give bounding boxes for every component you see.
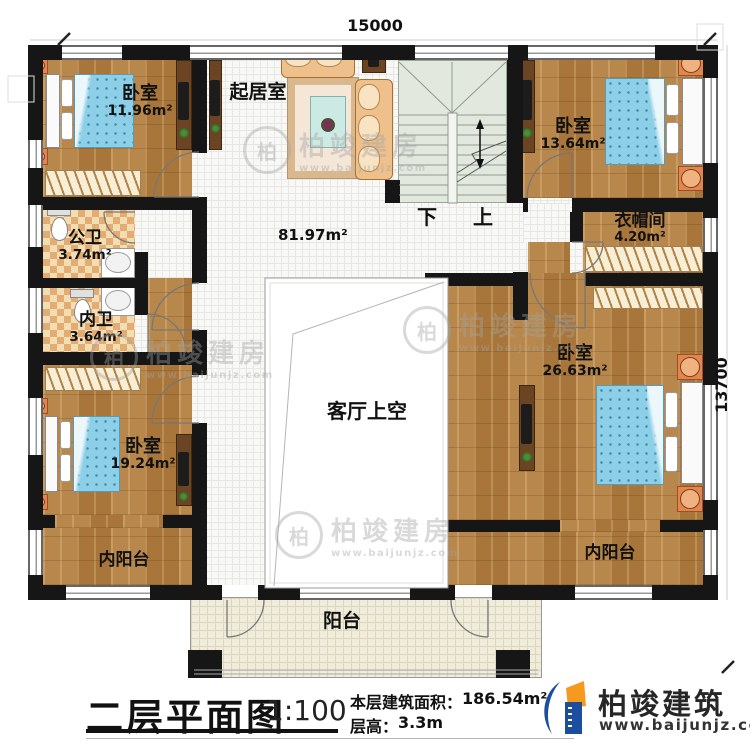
window xyxy=(66,585,150,600)
wardrobe xyxy=(593,287,703,309)
room-label-balcony-inner-left: 内阳台 xyxy=(92,551,156,570)
toilet-tank xyxy=(70,289,94,298)
window xyxy=(190,45,342,60)
wall-segment xyxy=(28,45,43,140)
pillow xyxy=(60,454,71,482)
drawing-scale: 1:100 xyxy=(266,694,347,727)
window xyxy=(62,45,122,60)
wall-segment xyxy=(192,423,207,515)
room-label-balcony-inner-right: 内阳台 xyxy=(578,544,642,563)
plant-icon xyxy=(522,128,532,138)
company-logo-icon xyxy=(538,676,594,740)
wall-segment xyxy=(513,272,528,320)
living-area-value: 81.97m² xyxy=(278,227,346,244)
plant-icon xyxy=(179,128,189,138)
wall-segment xyxy=(150,585,222,600)
wall-segment xyxy=(28,585,66,600)
window xyxy=(575,585,652,600)
wall-segment xyxy=(585,273,718,286)
hall-floor-pocket xyxy=(523,203,570,243)
column xyxy=(188,650,222,678)
floor-area-note: 本层建筑面积： 186.54m² xyxy=(350,689,547,713)
wall-segment xyxy=(28,197,207,210)
pillow xyxy=(665,392,678,428)
room-balcony-inner-right-floor xyxy=(440,532,703,585)
bed-headboard xyxy=(681,382,703,484)
wall-segment xyxy=(28,278,148,288)
wall-segment xyxy=(572,198,718,212)
stair-up-label: 上 xyxy=(468,206,498,228)
title-underline-thin xyxy=(86,738,574,739)
wardrobe xyxy=(45,170,141,196)
room-label-closet: 衣帽间 4.20m² xyxy=(600,212,680,246)
bed-headboard xyxy=(46,74,60,148)
room-label-bedroom-tr: 卧室 13.64m² xyxy=(533,117,613,153)
window xyxy=(28,530,43,575)
nightstand xyxy=(678,166,704,191)
coffee-table xyxy=(310,96,346,148)
nightstand xyxy=(677,354,703,380)
wall-segment xyxy=(135,252,148,315)
wall-segment xyxy=(385,180,400,203)
stair-down-label: 下 xyxy=(412,206,442,228)
title-underline xyxy=(86,729,338,733)
wall-segment xyxy=(652,585,718,600)
column xyxy=(496,650,530,678)
window xyxy=(300,585,410,600)
wall-segment xyxy=(192,528,207,585)
pillow xyxy=(61,112,73,140)
nightstand xyxy=(677,486,703,512)
wall-segment xyxy=(523,198,528,212)
wall-segment xyxy=(410,585,455,600)
pillow xyxy=(666,122,679,154)
window xyxy=(703,530,718,575)
wall-segment xyxy=(192,210,207,283)
bed-headboard xyxy=(45,416,58,492)
plant-icon xyxy=(179,492,188,501)
wall-segment xyxy=(192,330,207,375)
room-label-bedroom-br: 卧室 26.63m² xyxy=(535,344,615,380)
room-label-balcony: 阳台 xyxy=(314,611,370,632)
floor-height-note: 层高： 3.3m xyxy=(350,713,443,737)
wall-segment xyxy=(258,585,300,600)
wall-segment xyxy=(507,45,523,203)
bed-mattress xyxy=(596,385,664,485)
pillow xyxy=(665,436,678,472)
wardrobe xyxy=(585,246,703,272)
bed-headboard xyxy=(682,78,703,165)
pillow xyxy=(60,421,71,449)
dimension-top: 15000 xyxy=(330,16,420,35)
wall-segment xyxy=(122,45,190,60)
window xyxy=(703,78,718,163)
sofa-cushion xyxy=(358,115,380,141)
sink-icon xyxy=(105,290,131,311)
window xyxy=(28,398,43,455)
sofa-cushion xyxy=(358,146,380,172)
window xyxy=(528,45,655,60)
window xyxy=(28,205,43,247)
wall-segment xyxy=(570,212,583,242)
wall-segment xyxy=(28,352,192,365)
floor-plan: 15000 13700 卧室 11.96m² 起居室 81.97m² 卧室 13… xyxy=(0,0,750,745)
flower-icon xyxy=(321,118,335,132)
bed-mattress xyxy=(605,78,665,165)
room-label-void: 客厅上空 xyxy=(322,400,412,422)
plant-icon xyxy=(211,124,220,133)
window xyxy=(28,288,43,333)
sofa-cushion xyxy=(358,84,380,110)
wall-segment xyxy=(425,273,440,520)
window xyxy=(415,45,508,60)
wall-segment xyxy=(492,585,575,600)
balcony-inner-left-passage xyxy=(55,515,163,528)
tv-icon xyxy=(521,404,532,444)
room-label-bath-private: 内卫 3.64m² xyxy=(56,311,136,345)
wall-segment xyxy=(342,45,415,60)
room-label-bedroom-tl: 卧室 11.96m² xyxy=(100,84,180,120)
dimension-right: 13700 xyxy=(712,345,731,425)
staircase xyxy=(398,60,507,203)
wall-segment xyxy=(28,333,43,398)
wall-segment xyxy=(703,45,718,78)
pillow xyxy=(61,79,73,107)
company-logo-url: www.baijunjz.com xyxy=(599,716,750,734)
window xyxy=(28,140,43,168)
window xyxy=(703,218,718,252)
room-balcony-floor xyxy=(190,597,542,678)
room-label-living: 起居室 xyxy=(214,82,302,103)
wall-segment xyxy=(28,515,55,528)
room-label-bath-public: 公卫 3.74m² xyxy=(45,229,125,263)
pillow xyxy=(666,84,679,116)
wall-segment xyxy=(425,520,560,532)
balcony-inner-right-passage xyxy=(560,520,660,532)
plant-icon xyxy=(522,452,532,462)
wardrobe xyxy=(45,367,141,391)
wall-segment xyxy=(192,60,207,153)
wall-segment xyxy=(163,515,207,528)
room-label-bedroom-bl: 卧室 19.24m² xyxy=(103,437,183,473)
